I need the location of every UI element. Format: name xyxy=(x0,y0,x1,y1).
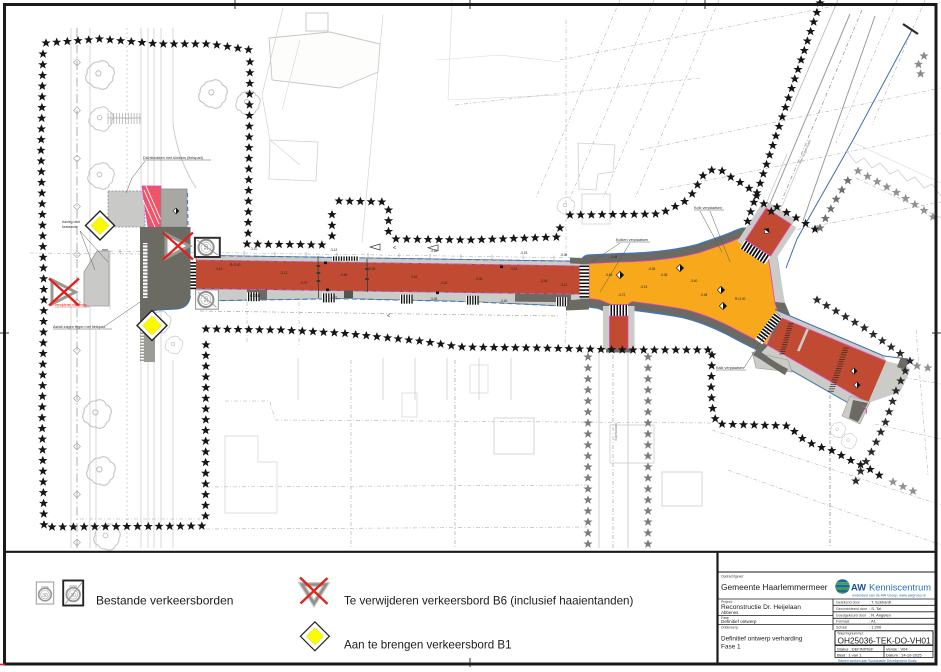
svg-text:Goedgekeurd door: Goedgekeurd door xyxy=(836,614,867,618)
svg-text:: S. Tol: : S. Tol xyxy=(869,606,881,611)
svg-text:: 1:200: : 1:200 xyxy=(869,624,882,629)
svg-text:Getekend door: Getekend door xyxy=(836,601,861,605)
svg-text:Opdrachtgever:: Opdrachtgever: xyxy=(721,575,744,579)
svg-text:Gemeente Haarlemmermeer: Gemeente Haarlemmermeer xyxy=(721,582,828,592)
svg-text:-3.40: -3.40 xyxy=(440,281,447,285)
svg-text:Kolk verplaatsen: Kolk verplaatsen xyxy=(694,206,722,210)
svg-text:-3.12: -3.12 xyxy=(280,271,287,275)
svg-text:Sophialaan: Sophialaan xyxy=(614,423,618,441)
svg-text:-3.40: -3.40 xyxy=(500,299,507,303)
svg-text:: T. Eckhardt: : T. Eckhardt xyxy=(869,600,892,605)
svg-text:: A1: : A1 xyxy=(869,618,877,623)
svg-text:-3.48: -3.48 xyxy=(610,255,617,259)
svg-text:-3.48: -3.48 xyxy=(700,293,707,297)
svg-text:-3.40: -3.40 xyxy=(690,279,697,283)
svg-text:onderdeel van de AW Groep, www: onderdeel van de AW Groep, www.awgroep.n… xyxy=(852,594,926,598)
svg-text:Datum : 14-10-2025: Datum : 14-10-2025 xyxy=(886,652,922,657)
svg-text:Formaat: Formaat xyxy=(836,619,849,623)
svg-text:Abbenes: Abbenes xyxy=(721,610,739,615)
svg-text:Gecontroleerd door: Gecontroleerd door xyxy=(836,607,868,611)
svg-text:Te verwijderen verkeersbord B6: Te verwijderen verkeersbord B6 (inclusie… xyxy=(344,595,633,608)
svg-text:Onderwerp:: Onderwerp: xyxy=(721,626,739,630)
svg-text:R=3.00: R=3.00 xyxy=(735,297,746,301)
svg-text:-3.72: -3.72 xyxy=(618,293,625,297)
svg-text:-3.08: -3.08 xyxy=(660,273,667,277)
svg-text:-3.05: -3.05 xyxy=(430,297,437,301)
svg-text:-3.72: -3.72 xyxy=(300,281,307,285)
svg-text:: R. Angelen: : R. Angelen xyxy=(869,613,891,618)
svg-text:OH25036-TEK-DO-VH01: OH25036-TEK-DO-VH01 xyxy=(838,635,932,645)
svg-text:-3.72: -3.72 xyxy=(330,296,337,300)
svg-text:A: A xyxy=(386,314,391,317)
svg-text:-3.10: -3.10 xyxy=(510,267,517,271)
svg-text:30: 30 xyxy=(42,593,48,599)
svg-text:-3.15: -3.15 xyxy=(520,251,527,255)
svg-text:-3.65: -3.65 xyxy=(340,273,347,277)
svg-text:verwijderen markering: verwijderen markering xyxy=(55,303,87,307)
svg-text:Bestande verkeersborden: Bestande verkeersborden xyxy=(96,594,233,608)
svg-text:Asfalt zagen tegen het fietspa: Asfalt zagen tegen het fietspad xyxy=(53,325,105,329)
svg-text:Fase 1: Fase 1 xyxy=(721,644,741,651)
svg-text:-3.12: -3.12 xyxy=(560,283,567,287)
svg-text:R=3.00: R=3.00 xyxy=(250,294,261,298)
svg-text:Kalk verplaatsen: Kalk verplaatsen xyxy=(716,366,744,370)
svg-text:R=3.00: R=3.00 xyxy=(230,263,241,267)
svg-text:-3.12: -3.12 xyxy=(330,248,337,252)
svg-text:Dichtblokken met klinkers (fie: Dichtblokken met klinkers (fietspad) xyxy=(143,156,204,160)
svg-text:-3.15: -3.15 xyxy=(640,285,647,289)
svg-text:-3.08: -3.08 xyxy=(475,277,482,281)
svg-text:Definitief ontwerp verharding: Definitief ontwerp verharding xyxy=(721,636,803,643)
svg-text:-3.48: -3.48 xyxy=(540,279,547,283)
svg-text:-3.10: -3.10 xyxy=(215,267,222,271)
svg-text:Status : DEFINITIEF: Status : DEFINITIEF xyxy=(837,646,874,651)
svg-text:-3.15: -3.15 xyxy=(410,275,417,279)
svg-text:bestaande: bestaande xyxy=(62,225,78,229)
svg-text:Aanleg uitrit: Aanleg uitrit xyxy=(62,220,80,224)
svg-text:AW: AW xyxy=(851,583,866,593)
svg-text:-3.05: -3.05 xyxy=(368,267,375,271)
svg-text:Kenniscentrum: Kenniscentrum xyxy=(869,583,931,593)
svg-text:-3.08: -3.08 xyxy=(560,253,567,257)
svg-text:Schaal: Schaal xyxy=(836,625,847,629)
svg-text:-3.65: -3.65 xyxy=(430,249,437,253)
svg-text:-3.05: -3.05 xyxy=(648,267,655,271)
svg-text:Blad : 1 van 1: Blad : 1 van 1 xyxy=(837,652,862,657)
svg-text:Samen werken aan Sustainable D: Samen werken aan Sustainable Development… xyxy=(838,659,917,663)
svg-text:Versie : V04: Versie : V04 xyxy=(886,646,908,651)
svg-text:-3.10: -3.10 xyxy=(250,247,257,251)
svg-text:Definitief ontwerp: Definitief ontwerp xyxy=(721,619,757,624)
svg-text:Aan te brengen verkeersbord B1: Aan te brengen verkeersbord B1 xyxy=(344,639,512,652)
svg-text:Kolken verplaatsen: Kolken verplaatsen xyxy=(616,238,648,242)
svg-text:A: A xyxy=(392,246,397,249)
